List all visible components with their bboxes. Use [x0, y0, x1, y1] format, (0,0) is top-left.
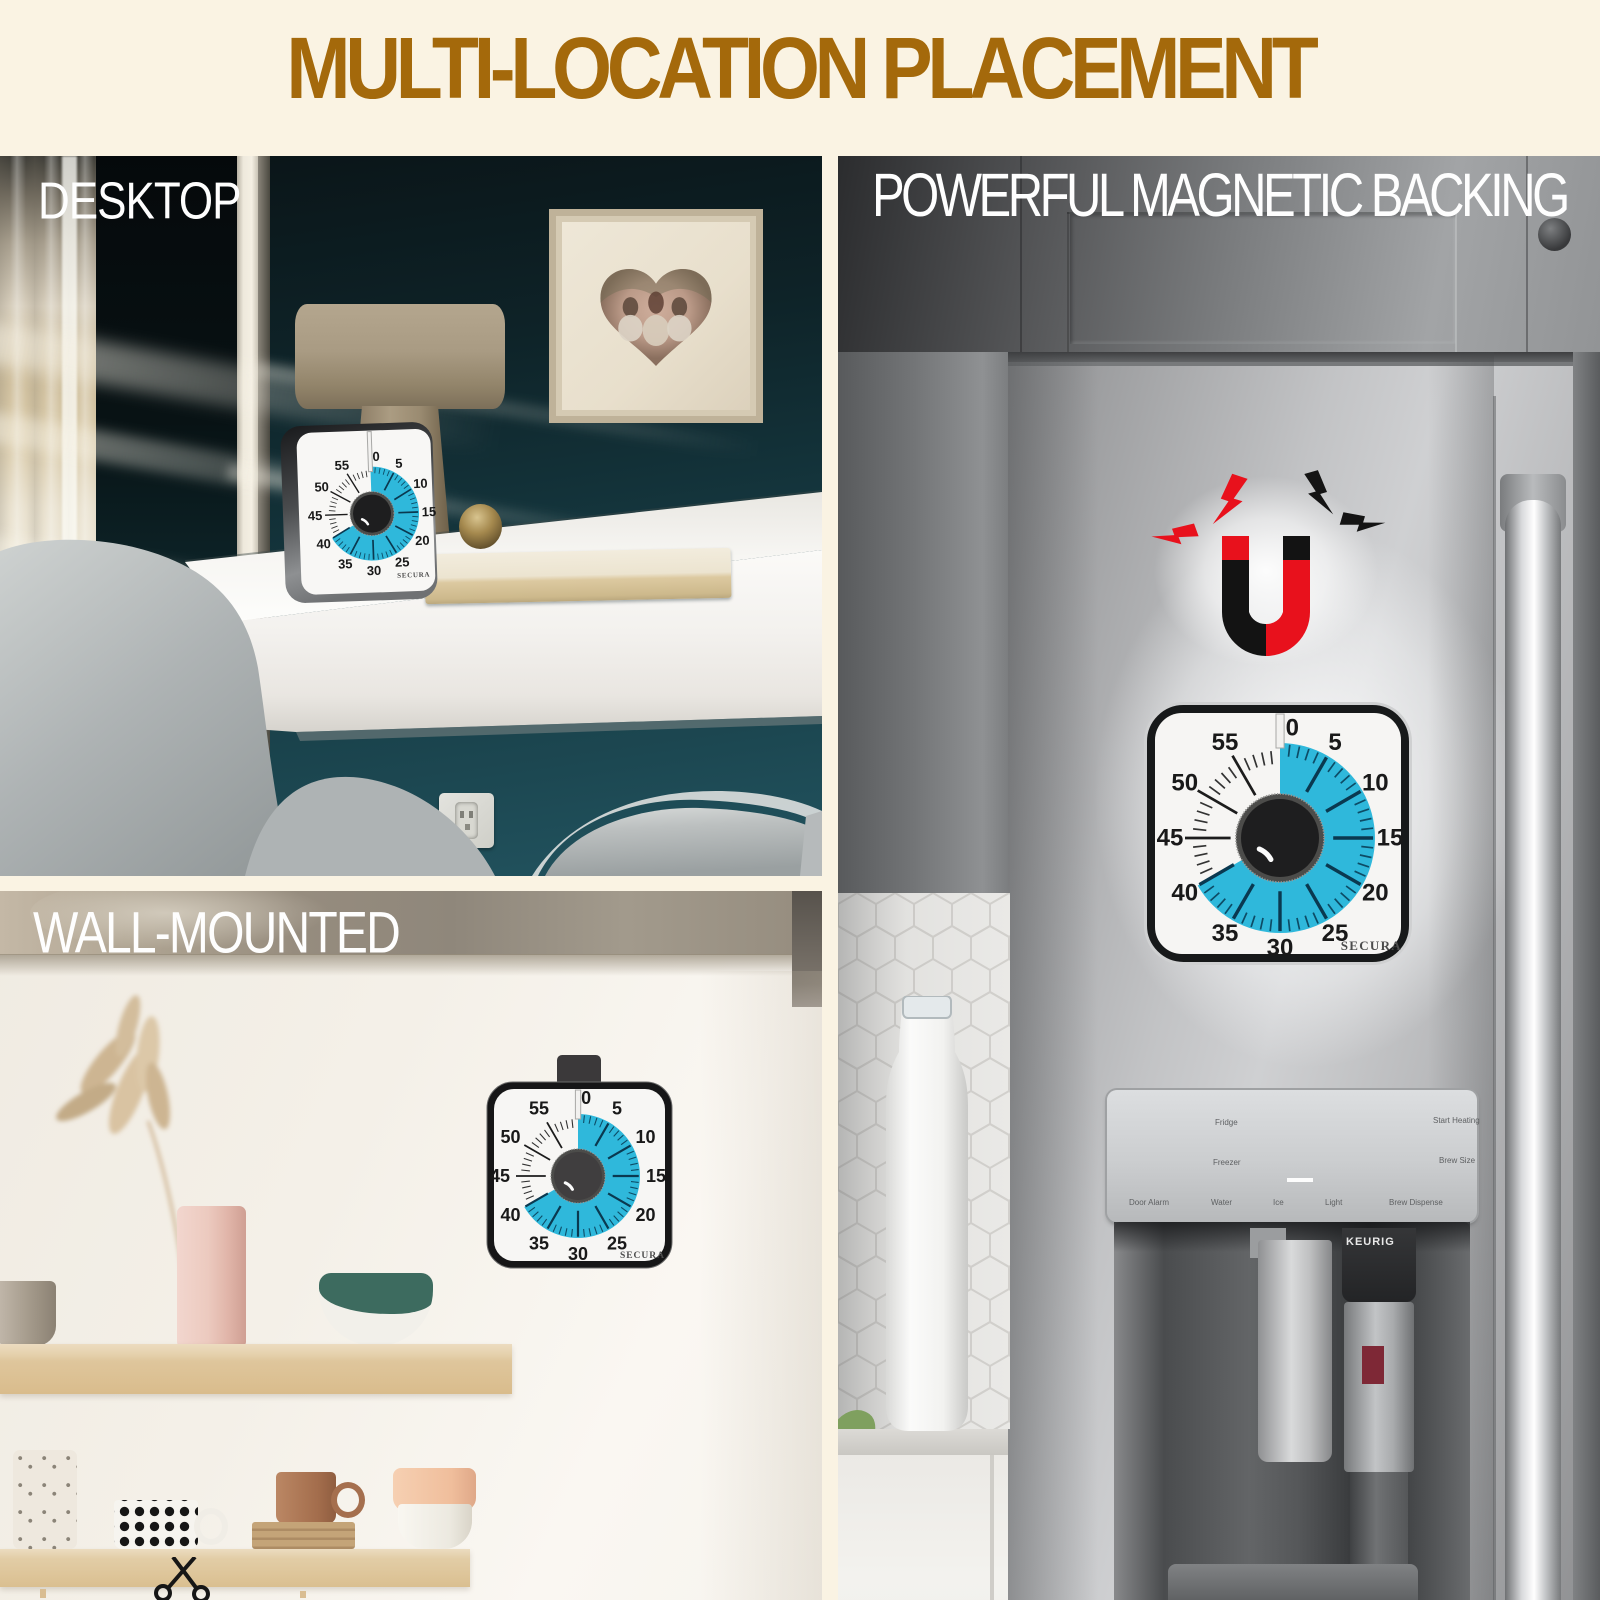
- svg-text:50: 50: [1171, 770, 1198, 797]
- svg-text:55: 55: [1212, 729, 1239, 756]
- svg-text:45: 45: [1157, 825, 1184, 852]
- svg-text:10: 10: [1362, 770, 1389, 797]
- svg-text:0: 0: [581, 1088, 591, 1108]
- svg-text:15: 15: [646, 1166, 666, 1186]
- svg-text:30: 30: [1267, 935, 1294, 962]
- svg-text:20: 20: [635, 1205, 655, 1225]
- svg-text:30: 30: [568, 1244, 588, 1264]
- svg-text:5: 5: [612, 1099, 622, 1119]
- svg-text:5: 5: [1328, 729, 1341, 756]
- svg-text:SECURA: SECURA: [620, 1251, 665, 1261]
- svg-text:40: 40: [500, 1205, 520, 1225]
- svg-text:0: 0: [1286, 715, 1299, 742]
- svg-text:40: 40: [1171, 880, 1198, 907]
- svg-text:20: 20: [1362, 880, 1389, 907]
- svg-text:15: 15: [1377, 825, 1404, 852]
- svg-text:45: 45: [490, 1166, 510, 1186]
- svg-text:50: 50: [500, 1127, 520, 1147]
- svg-text:10: 10: [635, 1127, 655, 1147]
- svg-text:35: 35: [529, 1234, 549, 1254]
- svg-text:35: 35: [1212, 920, 1239, 947]
- svg-text:SECURA: SECURA: [1341, 938, 1402, 953]
- svg-text:55: 55: [529, 1099, 549, 1119]
